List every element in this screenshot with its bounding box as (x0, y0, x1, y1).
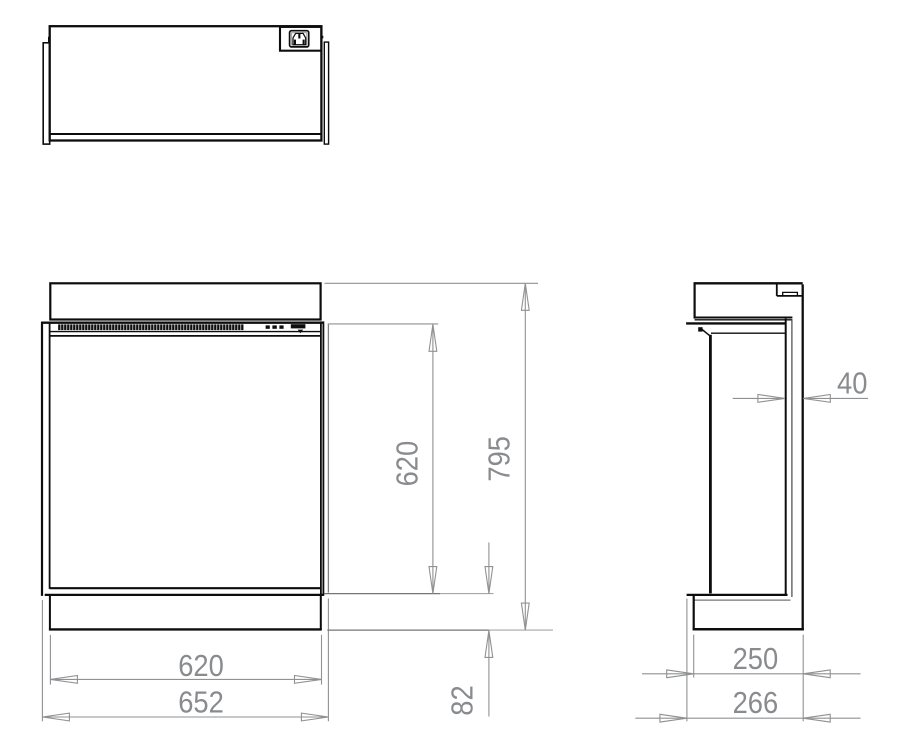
svg-text:620: 620 (178, 650, 224, 683)
svg-text:652: 652 (178, 686, 224, 719)
svg-text:620: 620 (391, 441, 424, 487)
svg-text:795: 795 (484, 436, 517, 482)
svg-text:82: 82 (447, 685, 480, 715)
svg-text:40: 40 (837, 367, 867, 400)
svg-text:266: 266 (733, 687, 779, 720)
svg-text:250: 250 (733, 643, 779, 676)
